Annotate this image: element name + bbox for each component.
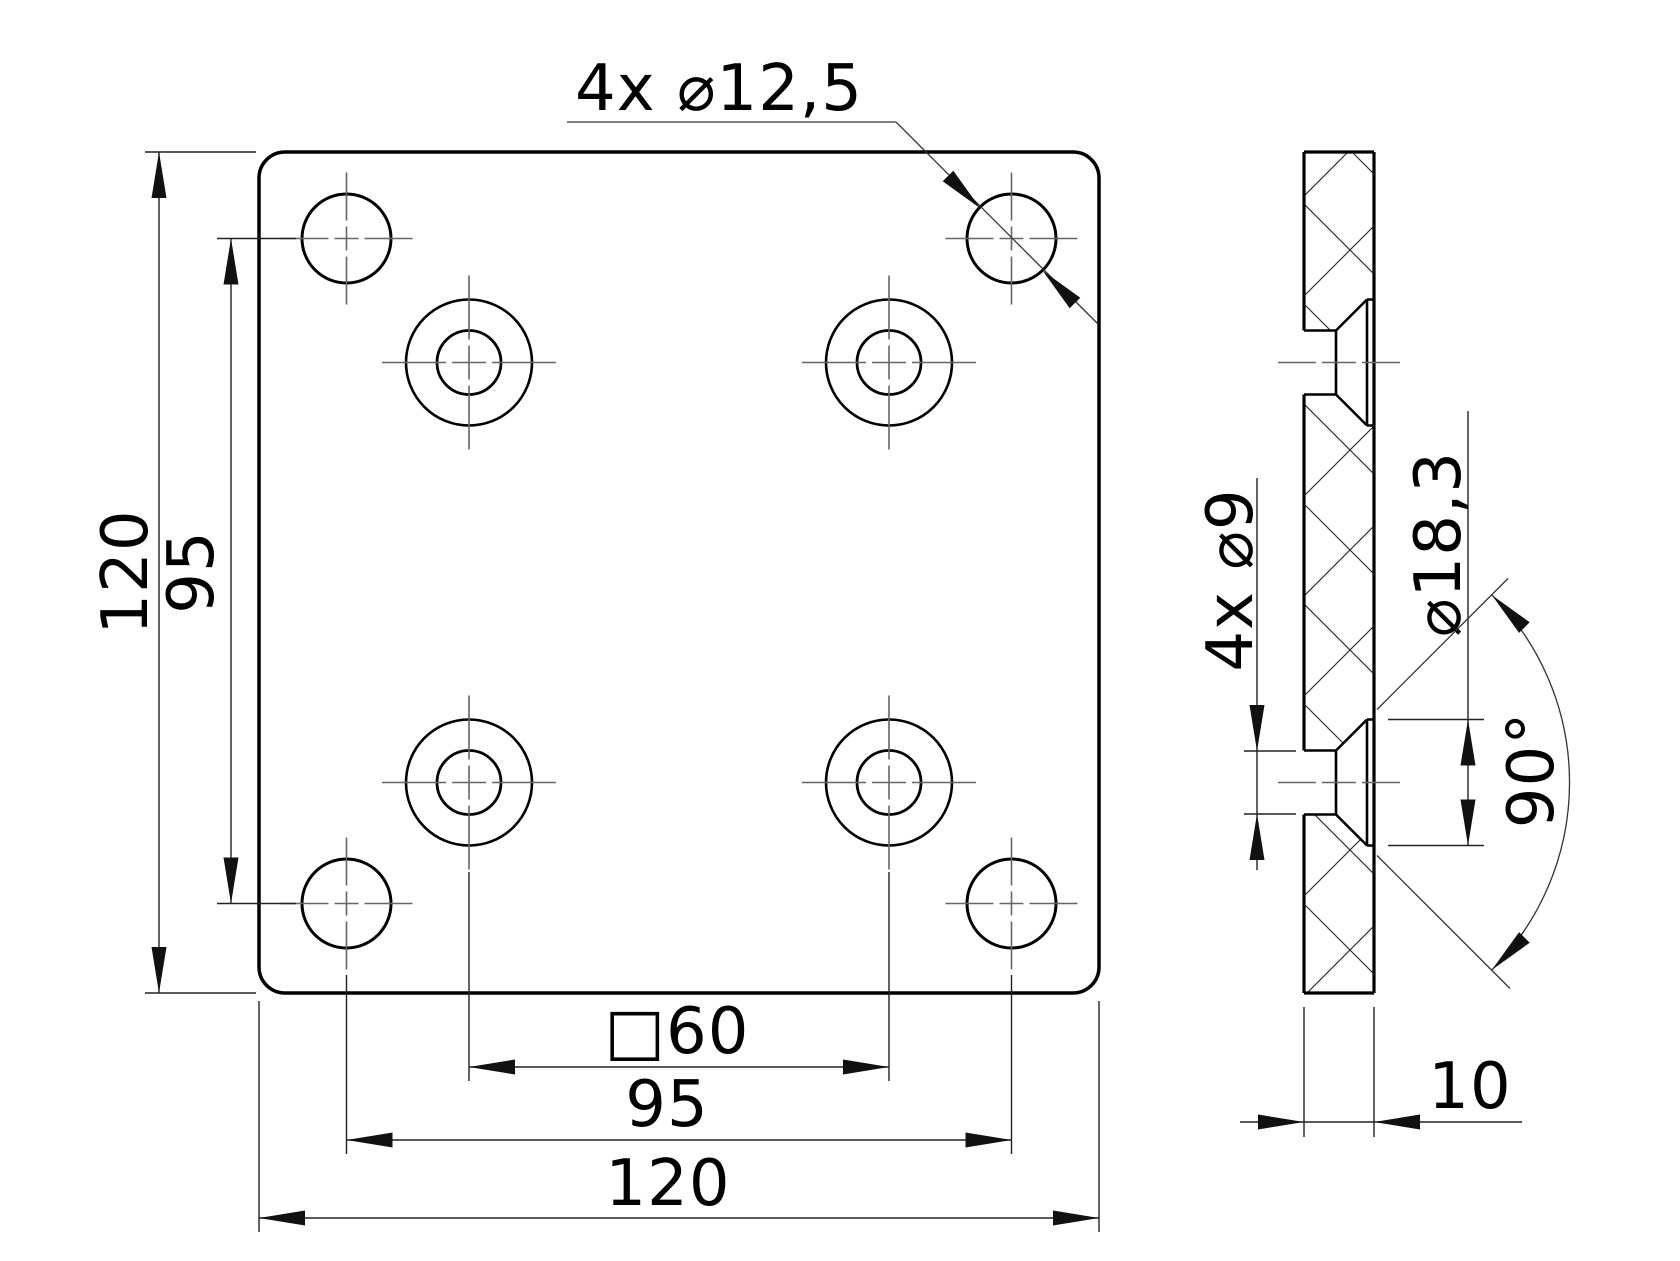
dim-text-hole-spacing-h: 95 xyxy=(625,1068,708,1142)
dim-text-width: 120 xyxy=(605,1147,730,1221)
dim-thickness-10: 10 xyxy=(1240,1007,1522,1137)
drawing-sheet: 120 95 □60 95 xyxy=(0,0,1680,1261)
plate-outline xyxy=(259,152,1099,993)
dim-bore-9: 4x ⌀9 xyxy=(1194,478,1296,870)
dim-text-height: 120 xyxy=(89,509,163,634)
dim-text-bore: 4x ⌀9 xyxy=(1194,488,1268,671)
front-view: 120 95 □60 95 xyxy=(89,52,1099,1232)
dim-square-60: □60 xyxy=(469,872,889,1081)
side-section-view: 4x ⌀9 ⌀18,3 90° 10 xyxy=(1194,152,1570,1137)
dim-text-hole-spacing-v: 95 xyxy=(155,530,229,613)
dim-text-countersink-diameter: ⌀18,3 xyxy=(1402,451,1476,637)
technical-drawing: 120 95 □60 95 xyxy=(0,0,1680,1261)
section-hatch xyxy=(1304,152,1374,993)
callout-text-corner-holes: 4x ⌀12,5 xyxy=(575,52,863,126)
dim-countersink-diameter: ⌀18,3 xyxy=(1388,411,1484,846)
center-marks xyxy=(281,173,1078,970)
countersunk-holes xyxy=(406,300,952,846)
dim-text-square-spacing: □60 xyxy=(605,995,750,1069)
corner-holes xyxy=(302,194,1056,948)
dim-countersink-angle: 90° xyxy=(1377,579,1570,989)
dim-text-thickness: 10 xyxy=(1428,1050,1511,1124)
dim-hole-spacing-vertical-95: 95 xyxy=(155,239,296,904)
dim-text-countersink-angle: 90° xyxy=(1495,712,1569,828)
